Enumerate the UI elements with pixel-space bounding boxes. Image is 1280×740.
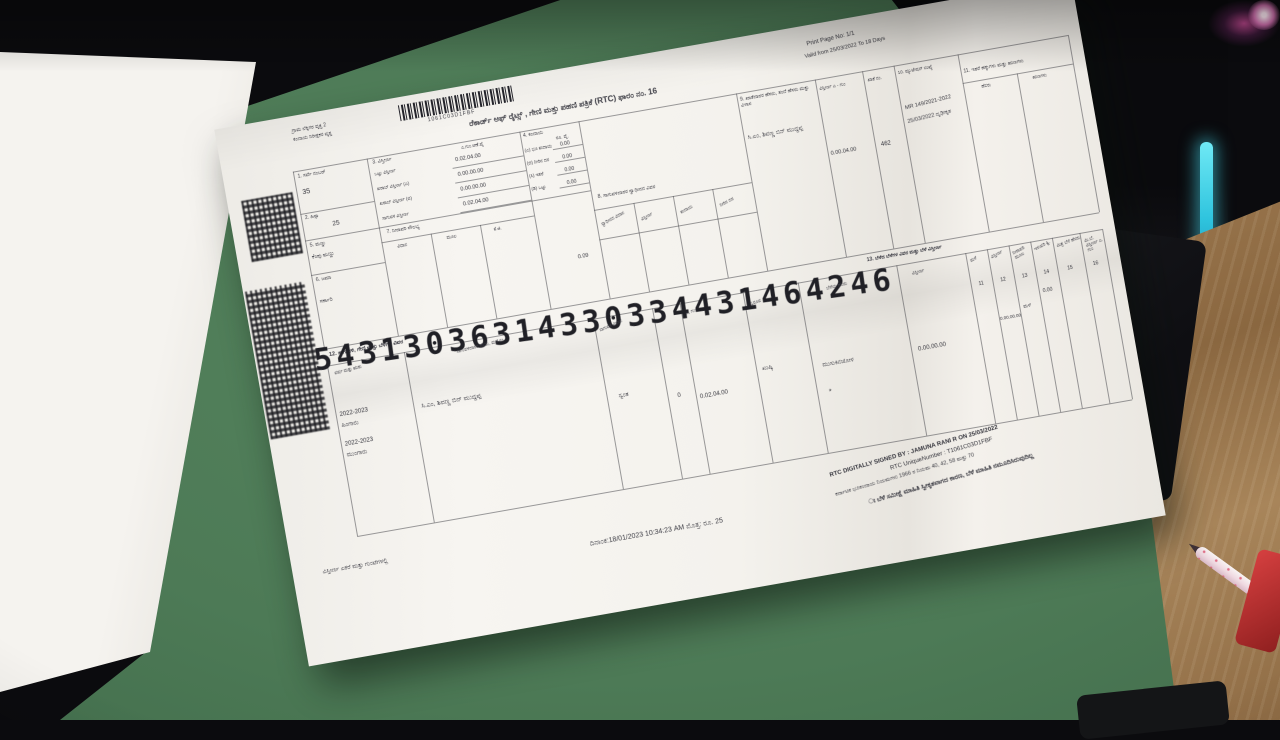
revenue-row-label: (ಬಿ) ನೀರಿನ ದರ: [526, 157, 549, 166]
year-1: 2022-2023: [339, 407, 368, 418]
grid-line: [311, 262, 385, 276]
hissa-value: 25: [332, 219, 340, 227]
crop-star: *: [829, 388, 833, 395]
extent-row-label: ಖರಾಬ್ ವಿಸ್ತೀರ್ಣ (ಎ): [377, 181, 410, 192]
extent-row-label: ಸಾಗುವಳಿ ವಿಸ್ತೀರ್ಣ: [382, 211, 409, 221]
owner-extent-value: 0.00.04.00: [830, 147, 857, 157]
owner-khata-value: 462: [881, 140, 892, 148]
season-2: ಮುಂಗಾರು: [346, 449, 368, 459]
possession-col: ಸ್ವಾಧೀನದ ವಿಧಾನ: [600, 210, 625, 226]
jama-label: 6. ಜಮಾ: [315, 275, 331, 284]
owner-khata-label: ಖಾತೆ ನಂ.: [867, 73, 893, 82]
col-15-number: 15: [1067, 265, 1074, 272]
irrigation-col: ಮೂಲ: [446, 233, 457, 240]
survey-value: 35: [302, 188, 311, 196]
grid-line: [404, 352, 435, 523]
mode-value: ಸ್ವಂತ: [618, 392, 629, 401]
irrigation-col: ವಿಧಾನ: [397, 242, 408, 249]
year-2: 2022-2023: [344, 437, 373, 448]
col-12-value: 0.00.00.00: [1000, 312, 1022, 321]
footer-date-line: ದಿನಾಂಕ:18/01/2023 10:34:23 AM ಮೊತ್ತ: ರೂ.…: [589, 517, 723, 548]
grid-line: [894, 66, 926, 243]
col-13-value: ಮಳೆ: [1023, 303, 1032, 310]
grid-line: [736, 93, 768, 270]
extent-row-label: ಒಟ್ಟು ವಿಸ್ತೀರ್ಣ: [374, 168, 396, 177]
crop-name-value: ಮುಸುಕಿನಜೋಳ: [822, 357, 855, 369]
mutation-value-2: 25/03/2022 ದೃಢೀಕೃತ: [907, 108, 952, 126]
flag-value: 0: [677, 393, 681, 399]
irrigation-col: ಕೆ.ಜಿ.: [493, 225, 501, 231]
grid-line: [300, 201, 374, 215]
serial-number-overlay: 54313036314330334431464246: [312, 262, 898, 378]
revenue-total: 0.09: [577, 253, 589, 261]
grid-line: [480, 225, 497, 319]
footer-signature-block: RTC DIGITALLY SIGNED BY : JAMUNA RANI R …: [829, 385, 1137, 473]
season-1: ಹಿಂಗಾರು: [341, 420, 359, 430]
col-16-number: 16: [1092, 260, 1099, 267]
grid-line: [1017, 73, 1044, 222]
cultivator-name: ಸಿ.ಎಂ, ಶಿವಣ್ಣ ಬಿನ್ ಮುದ್ದಪ್ಪ: [421, 392, 482, 410]
revenue-row-label: (ಡಿ) ಒಟ್ಟು: [531, 184, 546, 191]
extent-unit: ಎ.ಗುಂ.ಆಣೆ.ಪೈ: [461, 141, 484, 150]
owner-label: 9. ಖಾತೆದಾರರ ಹೆಸರು, ತಂದೆ ಹೆಸರು ಮತ್ತು ವಿಳಾ…: [740, 85, 815, 109]
nature-value: ಖುಷ್ಕಿ: [762, 364, 774, 373]
extent-row-value: 0.00.00.00: [457, 168, 484, 178]
other-rights-col: ಹೆಸರು: [981, 82, 991, 89]
grid-line: [431, 234, 448, 328]
grid-line: [1079, 233, 1110, 404]
col-11-number: 11: [978, 280, 984, 287]
crop-extent-value: 0.00.00.00: [918, 342, 947, 353]
barcode-2d-upper: [241, 192, 303, 262]
soil-value: ಕೆಂಪು ಮಣ್ಣು: [311, 251, 335, 262]
col-14-value: 0.00: [1042, 287, 1053, 295]
revenue-row-label: (ಸಿ) ಇತರೆ: [529, 171, 544, 178]
possession-col: ನೀರಿನ ದರ: [719, 196, 735, 208]
possession-label: 8. ಸಾಗುವಳಿದಾರರ ಸ್ವಾಧೀನದ ವಿವರ: [597, 184, 656, 200]
extent-row-value: 0.02.04.00: [463, 197, 490, 207]
hissa-label: 2. ಹಿಸ್ಸಾ: [305, 213, 320, 221]
grid-line: [357, 399, 1132, 537]
mutation-label: 10. ಮ್ಯುಟೇಷನ್ ಸಂಖ್ಯೆ: [897, 60, 955, 75]
possession-col: ಕಂದಾಯ: [679, 204, 693, 215]
revenue-row-label: (ಎ) ಭೂ ಕಂದಾಯ: [524, 143, 552, 153]
jama-value: ಸರ್ಕಾರಿ: [319, 297, 333, 306]
col-14-number: 14: [1043, 269, 1050, 276]
grid-line: [1052, 238, 1083, 409]
soil-label: 5. ಮಣ್ಣು: [309, 240, 326, 249]
grid-line: [593, 319, 624, 490]
grid-line: [599, 212, 757, 241]
col-11-header: ಮಳೆ: [969, 255, 977, 263]
footer-note-left: ವಿಸ್ತೀರ್ಣ ಎಕರೆ ಮತ್ತು ಗುಂಟೆಗಳಲ್ಲಿ: [322, 558, 388, 576]
extent-value: 0.02.04.00: [700, 389, 729, 400]
possession-col: ವಿಸ್ತೀರ್ಣ: [640, 211, 653, 221]
col-crop-extent-header: ವಿಸ್ತೀರ್ಣ: [911, 268, 924, 276]
glow-highlight: [1248, 0, 1280, 30]
owner-extent-label: ವಿಸ್ತೀರ್ಣ ಎ - ಗುಂ: [819, 79, 861, 91]
grid-line: [862, 71, 894, 248]
grid-line: [815, 79, 847, 256]
col-12-header: ವಿಸ್ತೀರ್ಣ: [990, 249, 1003, 259]
other-rights-col: ಋಣಗಳು: [1032, 72, 1047, 79]
col-13-number: 13: [1022, 273, 1029, 280]
extent-row-label: ಖರಾಬ್ ವಿಸ್ತೀರ್ಣ (ಬಿ): [379, 195, 412, 206]
col-12-number: 12: [1000, 277, 1007, 284]
grid-line: [680, 303, 711, 474]
extent-row-value: 0.00.00.00: [460, 182, 487, 192]
other-rights-label: 11. ಇತರೆ ಹಕ್ಕುಗಳು ಮತ್ತು ಋಣಗಳು: [963, 58, 1024, 74]
extent-row-value: 0.02.04.00: [455, 153, 482, 163]
revenue-unit: ರೂ. ಪೈ.: [555, 133, 569, 140]
owner-name: ಸಿ.ಎಂ, ಶಿವಣ್ಣ ಬಿನ್ ಮುದ್ದಪ್ಪ: [747, 125, 803, 142]
